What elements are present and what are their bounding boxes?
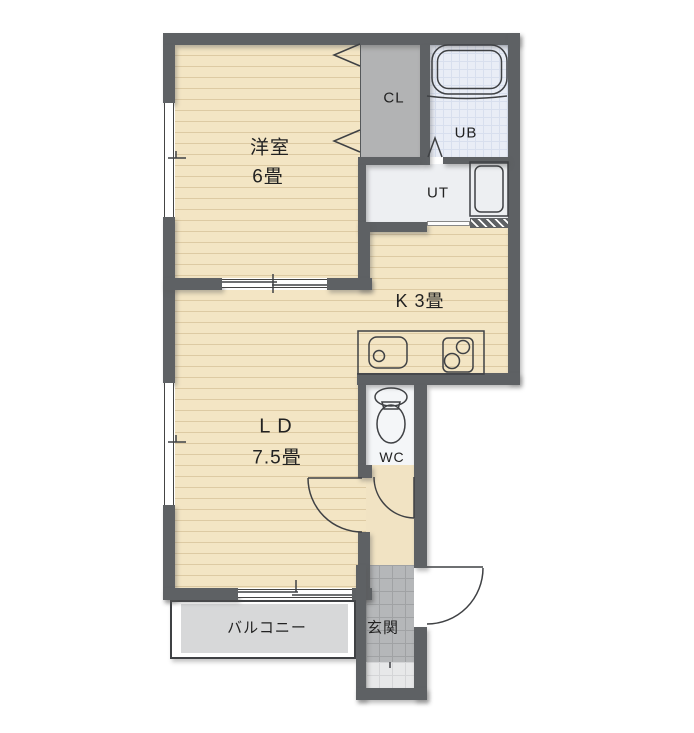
label-western-room-size: 6畳	[252, 162, 284, 189]
label-living-dining: L D	[259, 416, 292, 439]
wall-left-middle	[163, 217, 175, 383]
wall-top	[163, 33, 520, 45]
entrance-door	[427, 567, 483, 624]
wall-western-ld-right	[327, 278, 372, 290]
wall-right-lower	[414, 385, 427, 568]
wall-closet-right	[420, 45, 430, 165]
wall-wc-corner	[358, 465, 372, 478]
label-unit-bath: UB	[455, 125, 478, 142]
wall-wc-left	[358, 385, 366, 465]
entrance-tile-floor	[366, 565, 414, 662]
wall-entrance-left	[356, 565, 366, 700]
wall-closet-bottom	[358, 157, 420, 165]
wall-right-upper	[508, 33, 520, 383]
label-wc: WC	[379, 449, 404, 465]
entrance-porch-floor	[366, 662, 414, 688]
wall-western-ld-left	[163, 278, 222, 290]
window-western-left	[164, 103, 174, 217]
wall-utility-left	[358, 165, 366, 222]
wall-left-lower	[163, 505, 175, 600]
label-living-dining-size: 7.5畳	[252, 443, 301, 470]
wall-ld-bottom-left	[163, 588, 238, 600]
label-utility: UT	[427, 185, 449, 202]
room-ld-floor	[175, 290, 366, 588]
label-kitchen: K 3畳	[395, 287, 444, 313]
utility-sliding-door	[470, 218, 509, 228]
label-closet: CL	[383, 90, 404, 107]
label-western-room: 洋室	[250, 133, 290, 160]
hallway-floor	[366, 465, 414, 565]
western-ld-sliding-door	[222, 279, 327, 288]
window-ld-left	[164, 383, 174, 505]
floor-plan: 洋室 6畳 CL UB UT K 3畳 L D 7.5畳 WC バルコニー 玄関	[0, 0, 694, 733]
label-entrance: 玄関	[367, 617, 399, 638]
wall-left-upper	[163, 45, 175, 103]
balcony-sliding-door	[238, 589, 352, 598]
wall-entrance-bottom	[356, 688, 427, 700]
wall-bath-bottom	[443, 157, 508, 164]
wall-kitchen-bottom	[357, 373, 520, 385]
label-balcony: バルコニー	[227, 617, 307, 638]
utility-kitchen-opening	[427, 221, 470, 226]
